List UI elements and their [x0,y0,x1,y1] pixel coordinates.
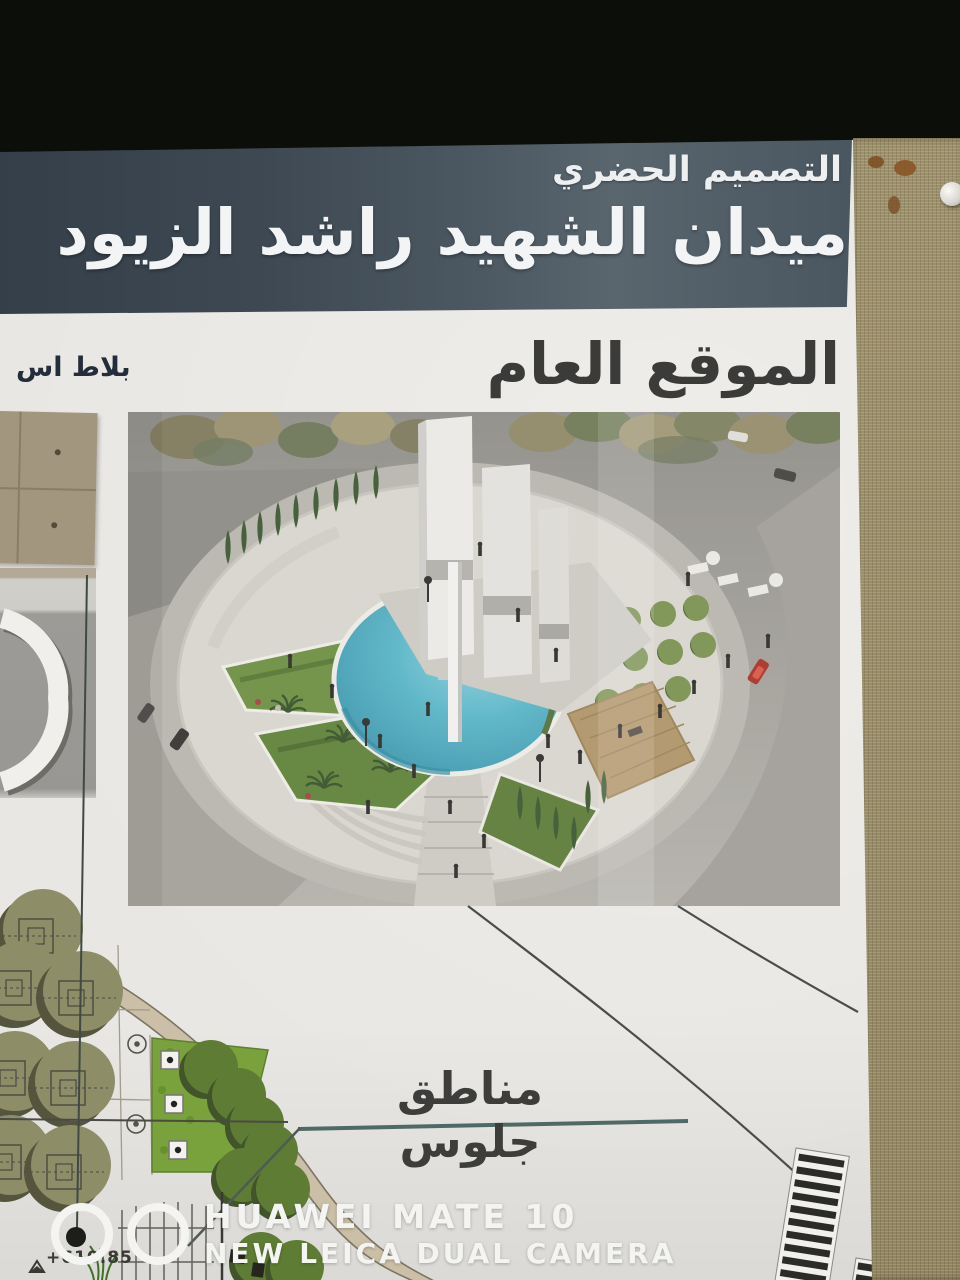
poster-header-subtitle: التصميم الحضري [552,150,842,190]
plan-crosswalk-hatch [775,1148,850,1280]
photo-of-architecture-poster: الموقع العام بلاط اس مناطق جلوس +610.85 … [0,0,960,1280]
rust-stain [888,196,900,214]
dual-lens-icon [46,1198,196,1270]
spot-elevation-marker [30,1261,44,1272]
watermark-line1: HUAWEI MATE 10 [204,1197,676,1237]
camera-watermark: HUAWEI MATE 10 NEW LEICA DUAL CAMERA [204,1197,676,1270]
section-title: الموقع العام [420,330,840,398]
watermark-line2: NEW LEICA DUAL CAMERA [204,1237,676,1270]
material-label: بلاط اس [16,352,131,383]
poster-header-title: ميدان الشهيد راشد الزيود [57,196,848,269]
pushpin [940,182,960,206]
plan-trees [0,889,123,1212]
dark-background-band [0,0,960,152]
seating-area-label: مناطق جلوس [320,1062,620,1168]
rust-stain [868,156,884,168]
plan-survey-markers [127,1035,146,1133]
rust-stain [894,160,916,176]
